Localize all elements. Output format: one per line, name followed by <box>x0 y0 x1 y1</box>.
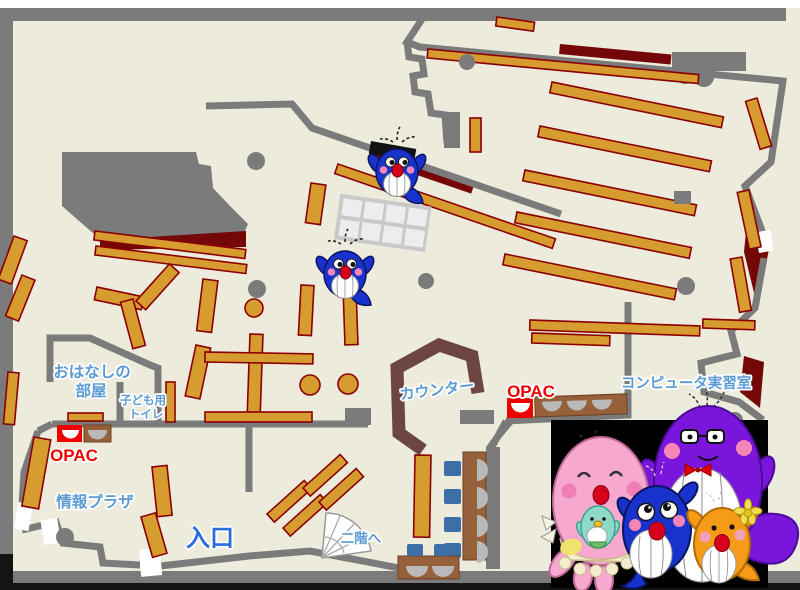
bookshelf <box>68 413 103 421</box>
pillar <box>56 528 74 546</box>
round-table <box>245 299 263 317</box>
pillar <box>247 152 265 170</box>
bookshelf <box>414 455 431 537</box>
chair[interactable] <box>407 544 423 556</box>
bookshelf <box>298 285 314 336</box>
bookshelf <box>532 333 610 346</box>
label-opac-right: OPAC <box>507 382 555 401</box>
pillar <box>677 277 695 295</box>
bookshelf <box>550 82 724 128</box>
frame-top-bar <box>13 8 786 21</box>
pillar <box>418 273 434 289</box>
label-kids-toilet-line2: トイレ <box>129 408 164 421</box>
frame-top-white <box>0 0 800 8</box>
dead-space-upper-left <box>62 152 248 243</box>
computer-desks <box>398 452 488 579</box>
bookshelf <box>247 334 263 412</box>
label-info-plaza: 情報プラザ <box>56 492 134 511</box>
bookshelf <box>197 279 218 332</box>
bookshelf <box>94 287 144 310</box>
frame-left-bar-dark <box>0 554 13 590</box>
counter-back-block <box>460 410 494 424</box>
bookshelf <box>503 254 677 300</box>
label-to-second-floor: 二階へ <box>341 530 382 546</box>
chair[interactable] <box>444 489 461 504</box>
label-kids-toilet-line1: 子ども用 <box>120 394 166 407</box>
chair[interactable] <box>434 544 450 556</box>
chair[interactable] <box>444 517 461 532</box>
pillar <box>248 280 266 298</box>
library-floor-map: おはなしの 部屋 子ども用 トイレ OPAC 情報プラザ 入口 二階へ カウンタ… <box>0 0 800 590</box>
plaza-desk <box>152 465 172 516</box>
bookshelf <box>205 352 313 364</box>
bookshelf <box>470 118 481 152</box>
label-computer-room: コンピュータ実習室 <box>621 374 752 392</box>
round-table <box>300 375 320 395</box>
label-storytelling-room-line1: おはなしの <box>53 363 131 381</box>
pillar <box>459 54 475 70</box>
opac-terminal-left[interactable] <box>57 425 111 442</box>
label-counter: カウンター <box>399 377 476 403</box>
bookshelf <box>305 183 325 225</box>
bookshelf <box>166 382 175 422</box>
chair[interactable] <box>444 461 461 476</box>
bookshelf <box>538 126 712 172</box>
bookshelf <box>746 98 772 149</box>
label-storytelling-room-line2: 部屋 <box>75 381 106 400</box>
bookshelf <box>136 264 179 310</box>
shelf-end-block <box>674 191 691 204</box>
label-opac-left: OPAC <box>50 446 98 465</box>
round-table <box>338 374 358 394</box>
label-entrance: 入口 <box>186 525 234 552</box>
bookshelf <box>205 412 312 422</box>
bookshelf <box>703 319 755 330</box>
